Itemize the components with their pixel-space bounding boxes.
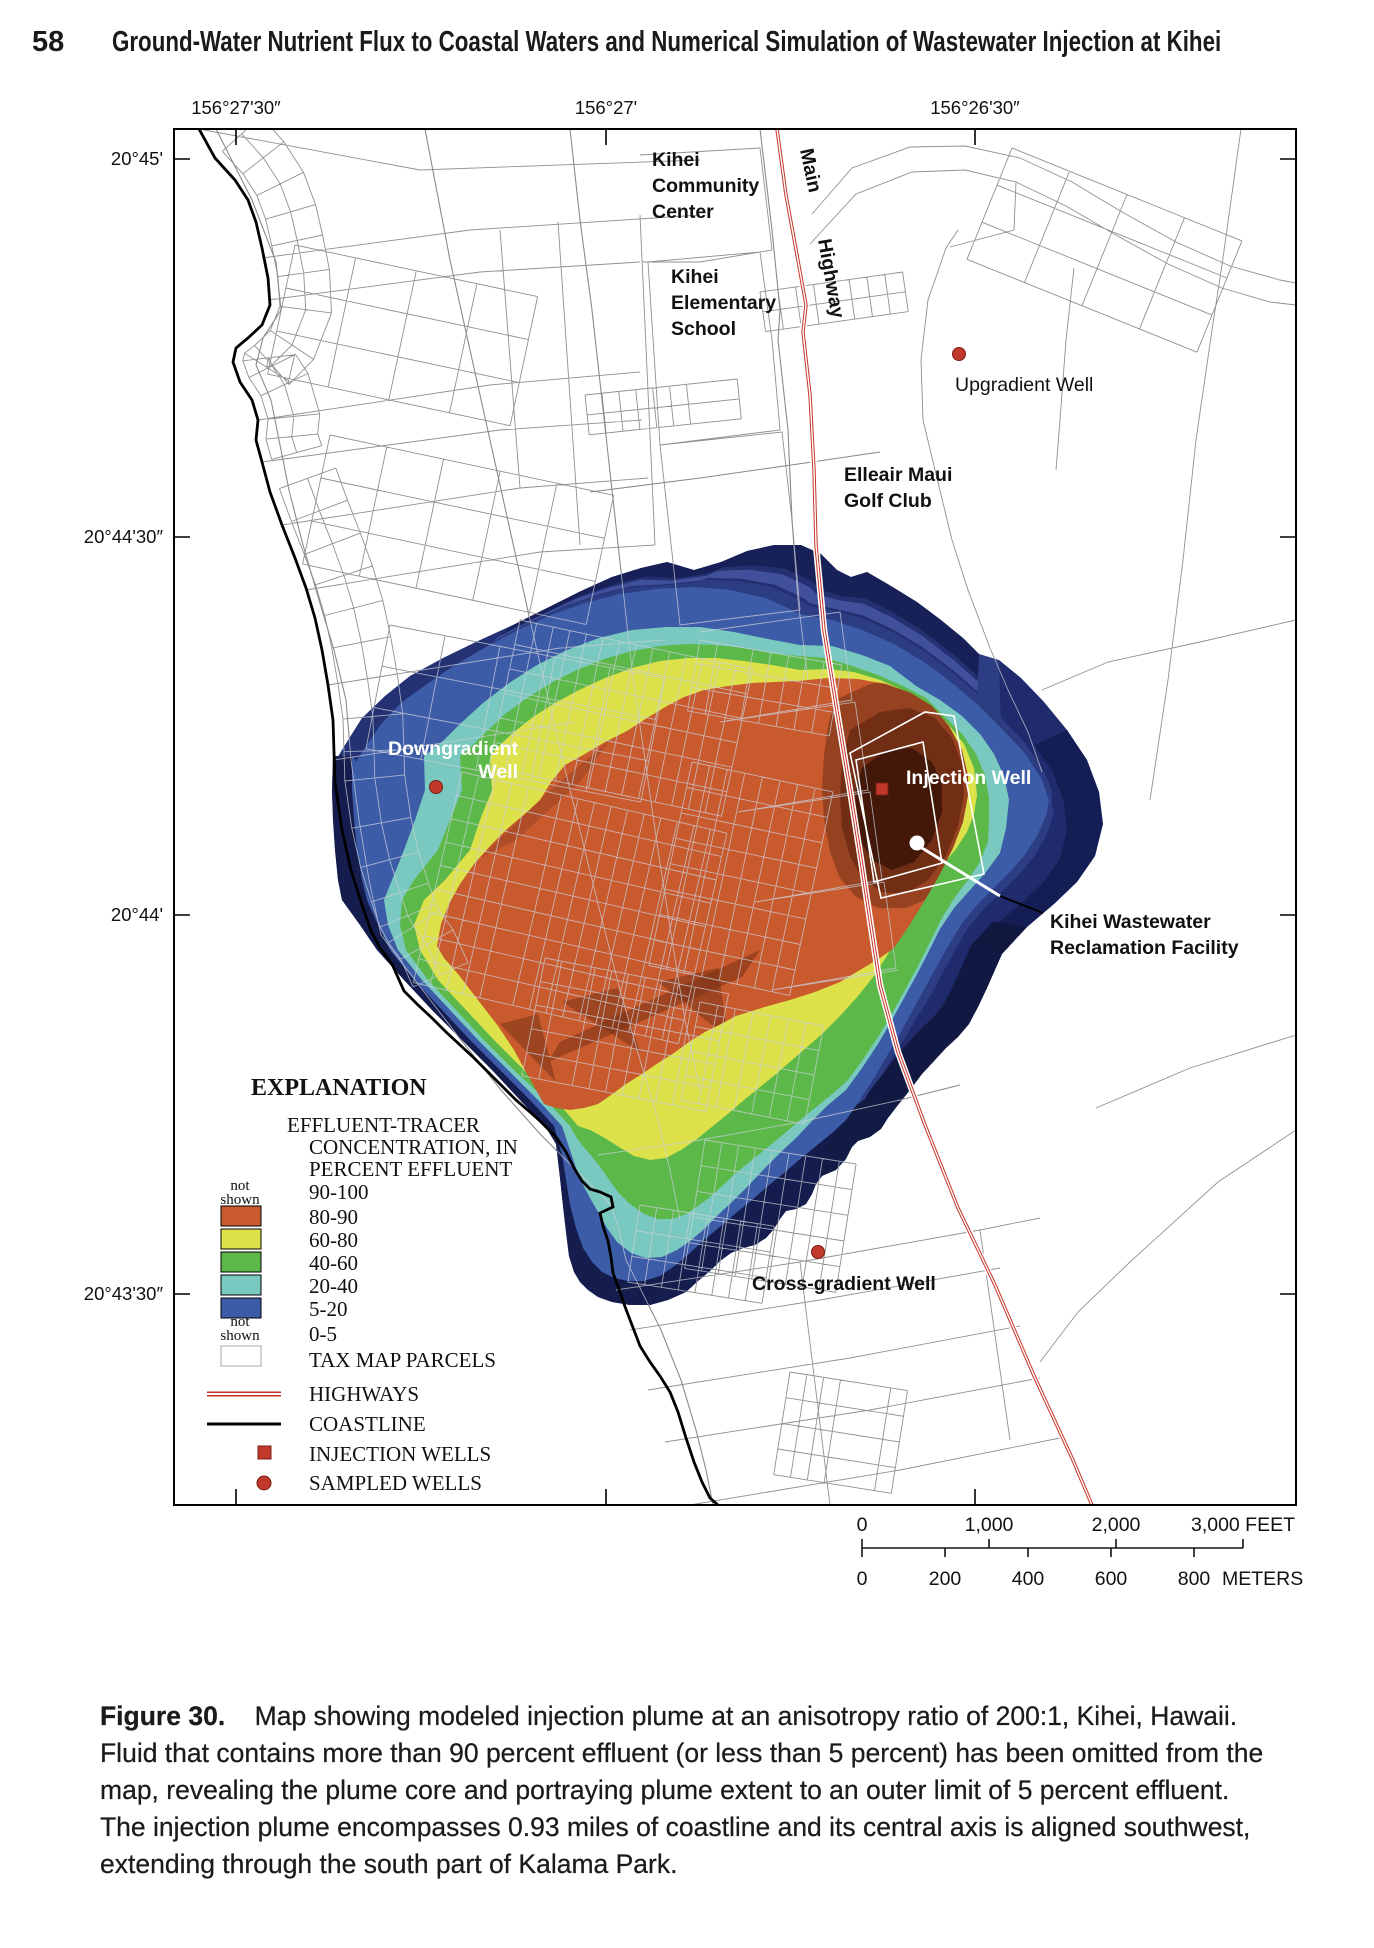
svg-text:EFFLUENT-TRACER: EFFLUENT-TRACER [287,1113,480,1137]
svg-text:5-20: 5-20 [309,1297,348,1321]
svg-text:0: 0 [857,1514,868,1536]
svg-text:Upgradient Well: Upgradient Well [955,374,1093,396]
svg-text:EXPLANATION: EXPLANATION [251,1075,427,1101]
svg-text:Golf Club: Golf Club [844,490,932,512]
svg-text:20°45': 20°45' [111,148,163,169]
svg-text:School: School [671,318,736,340]
svg-text:COASTLINE: COASTLINE [309,1412,426,1436]
svg-text:156°27'30″: 156°27'30″ [191,97,281,118]
svg-text:800: 800 [1178,1568,1211,1590]
svg-text:2,000: 2,000 [1092,1514,1141,1536]
svg-text:Kihei: Kihei [652,149,700,171]
svg-text:shown: shown [220,1328,260,1344]
svg-text:METERS: METERS [1222,1568,1303,1590]
svg-text:0: 0 [857,1568,868,1590]
svg-text:Main: Main [795,146,826,194]
svg-text:TAX MAP PARCELS: TAX MAP PARCELS [309,1348,496,1372]
svg-text:3,000 FEET: 3,000 FEET [1191,1514,1295,1536]
svg-text:Elementary: Elementary [671,292,776,314]
svg-text:HIGHWAYS: HIGHWAYS [309,1382,419,1406]
svg-text:Well: Well [478,761,518,783]
svg-text:Injection Well: Injection Well [906,767,1031,789]
svg-text:Highway: Highway [813,237,849,320]
svg-text:INJECTION WELLS: INJECTION WELLS [309,1442,491,1466]
svg-text:156°27': 156°27' [575,97,637,118]
svg-text:Downgradient: Downgradient [388,738,519,760]
svg-text:SAMPLED WELLS: SAMPLED WELLS [309,1471,482,1495]
svg-text:20-40: 20-40 [309,1274,358,1298]
svg-text:400: 400 [1012,1568,1045,1590]
svg-text:90-100: 90-100 [309,1180,369,1204]
svg-text:156°26'30″: 156°26'30″ [930,97,1020,118]
svg-text:Reclamation Facility: Reclamation Facility [1050,937,1239,959]
svg-text:80-90: 80-90 [309,1205,358,1229]
svg-text:0-5: 0-5 [309,1322,337,1346]
svg-text:Elleair Maui: Elleair Maui [844,464,952,486]
svg-text:20°43'30″: 20°43'30″ [84,1283,164,1304]
svg-text:Center: Center [652,201,714,223]
svg-text:Kihei: Kihei [671,266,719,288]
svg-text:PERCENT EFFLUENT: PERCENT EFFLUENT [309,1157,512,1181]
svg-text:60-80: 60-80 [309,1228,358,1252]
svg-text:Cross-gradient Well: Cross-gradient Well [752,1273,936,1295]
svg-text:Kihei Wastewater: Kihei Wastewater [1050,911,1211,933]
svg-text:40-60: 40-60 [309,1251,358,1275]
svg-text:20°44': 20°44' [111,904,163,925]
svg-text:1,000: 1,000 [965,1514,1014,1536]
svg-text:CONCENTRATION, IN: CONCENTRATION, IN [309,1135,518,1159]
svg-text:600: 600 [1095,1568,1128,1590]
svg-text:Community: Community [652,175,759,197]
svg-text:20°44'30″: 20°44'30″ [84,526,164,547]
svg-text:200: 200 [929,1568,962,1590]
